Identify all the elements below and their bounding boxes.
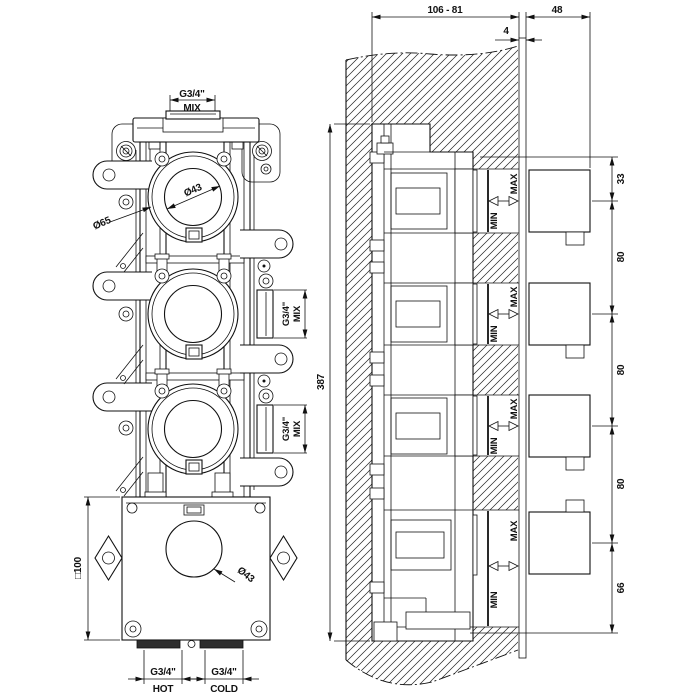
mix-top-size-label: G3/4" [179, 89, 205, 100]
front-view: G3/4" MIX [73, 89, 307, 695]
min-label: MIN [489, 591, 500, 608]
diamond-anchor-right [270, 536, 297, 580]
top-offset-label: 33 [616, 173, 627, 184]
side-port-size-label: G3/4" [281, 417, 292, 441]
clip [217, 269, 231, 283]
bottom-offset-label: 66 [616, 582, 627, 593]
valve-technical-drawing: G3/4" MIX [0, 0, 700, 700]
cold-name-label: COLD [210, 684, 238, 695]
valve-module-3 [148, 369, 238, 474]
max-label: MAX [509, 286, 520, 307]
lug-left-3 [93, 383, 152, 411]
lug-left-1 [93, 161, 152, 189]
handle-tab [566, 345, 584, 358]
top-port-body [163, 118, 223, 132]
plate-thickness-dimension: 4 [495, 26, 542, 40]
side-port-dimension-upper: G3/4" MIX [257, 290, 307, 338]
clip [155, 152, 169, 166]
collar [455, 169, 473, 233]
side-port-size-label: G3/4" [281, 302, 292, 326]
technical-drawing-page: G3/4" MIX [0, 0, 700, 700]
side-port-name-label: MIX [292, 420, 303, 437]
diamond-anchor-left [95, 536, 122, 580]
face-plate [473, 284, 477, 344]
hot-dimension: G3/4" HOT [128, 650, 198, 695]
corner-screw-right [253, 142, 272, 161]
side-port-dimension-lower: G3/4" MIX [257, 405, 307, 453]
side-port [257, 405, 273, 453]
hot-size-label: G3/4" [150, 667, 176, 678]
protrusion-dimension: 48 [526, 5, 590, 168]
valve-module-2 [148, 254, 238, 359]
side-port-name-label: MIX [292, 305, 303, 322]
inlet-box [95, 473, 297, 648]
max-label: MAX [509, 520, 520, 541]
clip [217, 152, 231, 166]
square100-label: □100 [73, 556, 84, 579]
top-port [166, 111, 220, 119]
face-plate [473, 170, 477, 232]
height-label: 387 [316, 373, 327, 390]
clip [155, 269, 169, 283]
lug-right-2 [240, 345, 293, 373]
hook-tab-right [232, 142, 243, 149]
corner-screw-left [117, 142, 136, 161]
side-port [257, 290, 273, 338]
clip [155, 384, 169, 398]
handle-tab [566, 232, 584, 245]
hot-inlet-port [137, 640, 180, 648]
min-label: MIN [489, 437, 500, 454]
dia65-label: Ø65 [91, 215, 113, 233]
cartridge-key-tab [186, 345, 202, 359]
face-plate [473, 515, 477, 575]
max-label: MAX [509, 173, 520, 194]
protrusion-label: 48 [552, 5, 563, 16]
collar [455, 283, 473, 345]
cold-size-label: G3/4" [211, 667, 237, 678]
depth-range-label: 106 - 81 [427, 5, 463, 16]
pitch-3-label: 80 [616, 478, 627, 489]
hook-tab-left [149, 142, 160, 149]
hot-name-label: HOT [153, 684, 174, 695]
clip [217, 384, 231, 398]
handle-4 [529, 512, 590, 574]
handle-2 [529, 283, 590, 345]
cartridge-key-tab [186, 228, 202, 242]
handle-tab [566, 457, 584, 470]
cold-inlet-port [200, 640, 243, 648]
lug-right-3 [240, 458, 293, 486]
cartridge-key-tab [186, 460, 202, 474]
min-label: MIN [489, 325, 500, 342]
max-label: MAX [509, 398, 520, 419]
plate-thickness-label: 4 [503, 26, 509, 37]
min-label: MIN [489, 212, 500, 229]
tile-plate [519, 38, 526, 658]
lug-right-1 [240, 230, 293, 258]
cold-dimension: G3/4" COLD [189, 650, 259, 695]
pitch-1-label: 80 [616, 251, 627, 262]
handle-tab [566, 500, 584, 512]
side-view: MAX MIN MAX MIN [316, 5, 627, 685]
dia65-dimension: Ø65 [91, 207, 151, 232]
box-body [122, 497, 270, 640]
pitch-2-label: 80 [616, 364, 627, 375]
face-plate [473, 396, 477, 455]
handle-1 [529, 170, 590, 232]
handle-3 [529, 395, 590, 457]
valve-module-1 [148, 152, 238, 242]
collar [455, 395, 473, 456]
lug-left-2 [93, 272, 152, 300]
